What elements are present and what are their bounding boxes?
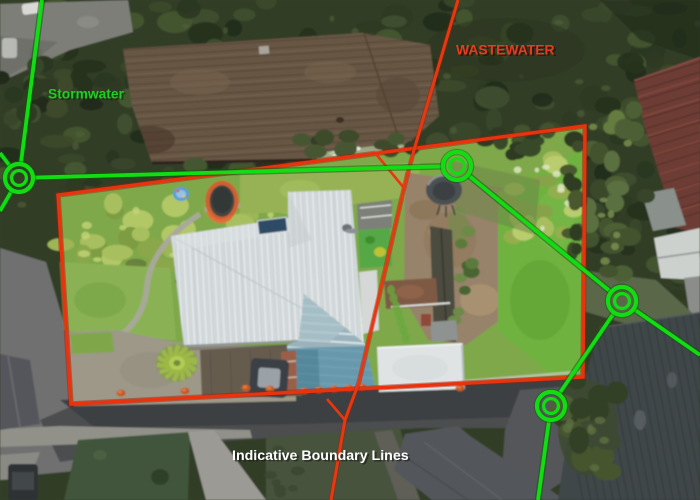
svg-text:Stormwater: Stormwater — [48, 87, 125, 102]
svg-text:Indicative Boundary Lines: Indicative Boundary Lines — [232, 448, 409, 464]
svg-text:WASTEWATER: WASTEWATER — [456, 42, 555, 58]
